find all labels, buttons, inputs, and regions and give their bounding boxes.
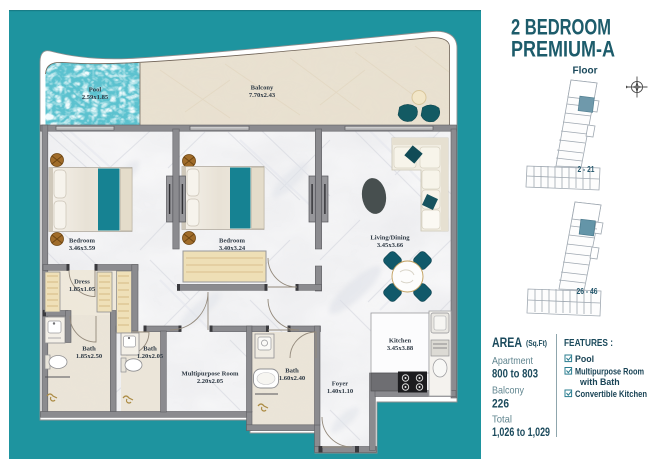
svg-text:Multipurpose Room: Multipurpose Room	[575, 367, 644, 377]
svg-text:3.40x3.24: 3.40x3.24	[219, 245, 246, 252]
svg-text:800 to 803: 800 to 803	[492, 369, 538, 381]
svg-text:Balcony: Balcony	[251, 85, 274, 92]
svg-text:3.45x3.66: 3.45x3.66	[377, 242, 404, 249]
svg-text:1.85x2.50: 1.85x2.50	[76, 353, 103, 360]
svg-text:AREA: AREA	[492, 335, 522, 350]
svg-text:2 - 21: 2 - 21	[578, 164, 595, 174]
svg-text:Balcony: Balcony	[492, 385, 525, 397]
svg-text:1.40x1.10: 1.40x1.10	[327, 388, 354, 395]
svg-text:Multipurpose Room: Multipurpose Room	[182, 371, 239, 378]
svg-text:1.60x2.40: 1.60x2.40	[279, 375, 306, 382]
svg-text:1.85x1.05: 1.85x1.05	[69, 286, 96, 293]
svg-text:(Sq.Ft): (Sq.Ft)	[526, 339, 547, 348]
svg-text:2.20x2.05: 2.20x2.05	[197, 378, 224, 385]
svg-text:Bath: Bath	[285, 368, 299, 375]
svg-text:with Bath: with Bath	[579, 377, 620, 387]
svg-text:Pool: Pool	[89, 87, 102, 94]
svg-text:7.70x2.43: 7.70x2.43	[249, 92, 276, 99]
svg-text:Bath: Bath	[143, 346, 157, 353]
svg-text:226: 226	[492, 399, 509, 411]
svg-text:Convertible Kitchen: Convertible Kitchen	[575, 389, 647, 399]
svg-text:3.45x3.88: 3.45x3.88	[387, 345, 414, 352]
svg-text:Living/Dining: Living/Dining	[370, 235, 410, 242]
svg-text:Kitchen: Kitchen	[389, 338, 412, 345]
svg-text:Dress: Dress	[74, 279, 90, 286]
svg-text:Bedroom: Bedroom	[219, 238, 245, 245]
svg-text:PREMIUM-A: PREMIUM-A	[511, 37, 615, 62]
svg-text:Total: Total	[492, 414, 512, 426]
svg-text:Bath: Bath	[82, 346, 96, 353]
svg-text:Foyer: Foyer	[332, 381, 349, 388]
svg-text:Bedroom: Bedroom	[69, 238, 95, 245]
svg-text:1,026 to 1,029: 1,026 to 1,029	[492, 427, 550, 439]
svg-text:1.20x2.05: 1.20x2.05	[137, 353, 164, 360]
svg-text:Floor: Floor	[573, 66, 598, 77]
svg-text:26 - 46: 26 - 46	[577, 286, 598, 296]
svg-text:FEATURES :: FEATURES :	[564, 337, 613, 349]
svg-text:2.59x1.85: 2.59x1.85	[82, 94, 109, 101]
svg-text:3.46x3.59: 3.46x3.59	[69, 245, 96, 252]
svg-text:Apartment: Apartment	[492, 355, 533, 367]
svg-text:Pool: Pool	[575, 354, 594, 364]
